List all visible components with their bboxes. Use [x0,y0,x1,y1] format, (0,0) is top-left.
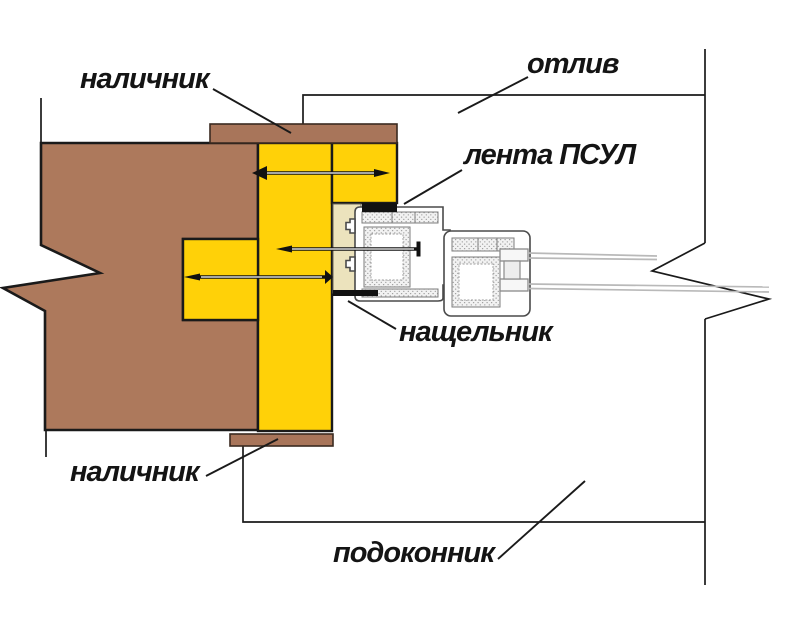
leader-flashing-strip [348,301,396,329]
windowsill-line [243,446,705,522]
sash-chamber-core [459,264,493,300]
leader-windowsill [498,481,585,559]
glass-unit-lines [528,253,769,292]
window-box-inset-block [183,239,258,320]
label-architrave-top: наличник [80,65,209,94]
label-psul-tape: лента ПСУЛ [464,141,635,170]
label-architrave-bottom: наличник [70,458,199,487]
window-box-jamb [258,143,332,431]
glazing-bead-bottom [500,279,528,291]
label-windowsill: подоконник [333,539,494,568]
nail-head [417,242,421,257]
drip-cap-line [303,95,705,124]
frame-chamber-core [371,234,403,280]
architrave-top-board [210,124,397,143]
glazing-bead-top [500,249,528,261]
architrave-bottom-board [230,434,333,446]
psul-tape-shape [362,203,397,212]
frame-top-chambers [362,212,438,223]
label-flashing-strip: нащельник [399,318,552,347]
leader-psul-tape [404,170,462,204]
diagram-canvas: наличник отлив лента ПСУЛ нащельник нали… [0,0,800,636]
flashing-strip-shape [333,290,378,296]
glass-spacer [504,261,520,279]
label-drip-cap: отлив [527,50,618,79]
right-wall-break-icon [652,243,769,319]
